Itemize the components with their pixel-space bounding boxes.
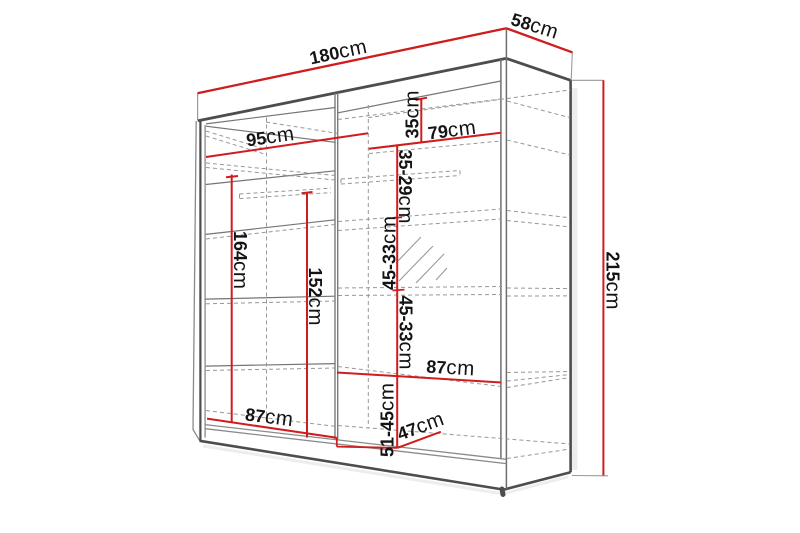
svg-text:51-45cm: 51-45cm (376, 382, 399, 457)
svg-text:152cm: 152cm (304, 268, 327, 327)
svg-text:45-33cm: 45-33cm (395, 296, 418, 371)
svg-text:87cm: 87cm (426, 355, 476, 381)
svg-text:164cm: 164cm (229, 231, 252, 290)
svg-text:215cm: 215cm (602, 252, 625, 311)
svg-text:45-33cm: 45-33cm (378, 215, 401, 290)
svg-text:35-29cm: 35-29cm (394, 150, 417, 225)
svg-text:35cm: 35cm (401, 90, 424, 139)
